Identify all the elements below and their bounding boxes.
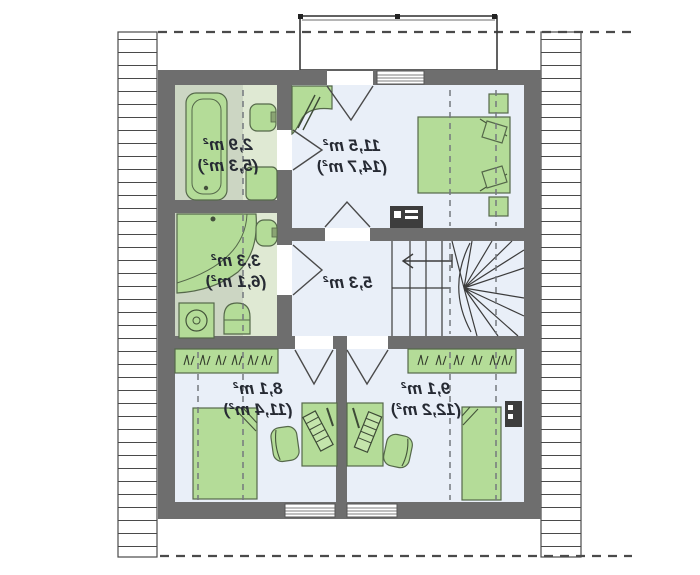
area-text: 2,9 m² <box>202 135 253 154</box>
tv-unit <box>390 206 423 228</box>
label-hall: 5,3 m² <box>322 273 372 292</box>
nightstand-top <box>489 94 508 113</box>
window-bottom-right <box>347 504 397 517</box>
toilet <box>224 303 250 334</box>
floor-area-text: (14,7 m²) <box>317 157 387 176</box>
desk-left <box>302 403 337 466</box>
sink-middle-bathroom <box>256 220 277 246</box>
single-bed-right <box>462 407 501 500</box>
desk-right <box>347 403 383 466</box>
balcony-dormer-outline <box>298 14 497 70</box>
wardrobe-bottom-right <box>408 349 516 373</box>
area-text: 8,1 m² <box>232 379 282 398</box>
office-chair-left <box>270 425 300 462</box>
floor-area-text: (6,1 m²) <box>205 272 266 291</box>
window-top <box>377 71 424 84</box>
washing-machine <box>179 303 214 338</box>
floor-plan-canvas: 2,9 m² (5,3 m²) 3,3 m² (6,1 m²) 11,5 m² … <box>0 0 700 575</box>
wardrobe-bottom-left <box>175 349 278 373</box>
roof-hatch-right <box>541 32 581 557</box>
sink-top-bathroom <box>250 104 276 131</box>
area-text: 9,1 m² <box>400 379 450 398</box>
floor-plan-drawing: 2,9 m² (5,3 m²) 3,3 m² (6,1 m²) 11,5 m² … <box>0 0 700 575</box>
floor-area-text: (5,3 m²) <box>197 156 258 175</box>
area-text: 3,3 m² <box>210 251 260 270</box>
area-text: 5,3 m² <box>322 273 372 292</box>
window-bottom-left <box>285 504 335 517</box>
floor-area-text: (12,2 m²) <box>391 400 461 419</box>
floor-area-text: (11,4 m²) <box>223 400 292 419</box>
roof-hatch-left <box>118 32 157 557</box>
nightstand-bottom <box>489 197 508 216</box>
area-text: 11,5 m² <box>322 136 381 155</box>
radiator <box>505 401 522 427</box>
single-bed-left <box>193 408 257 499</box>
